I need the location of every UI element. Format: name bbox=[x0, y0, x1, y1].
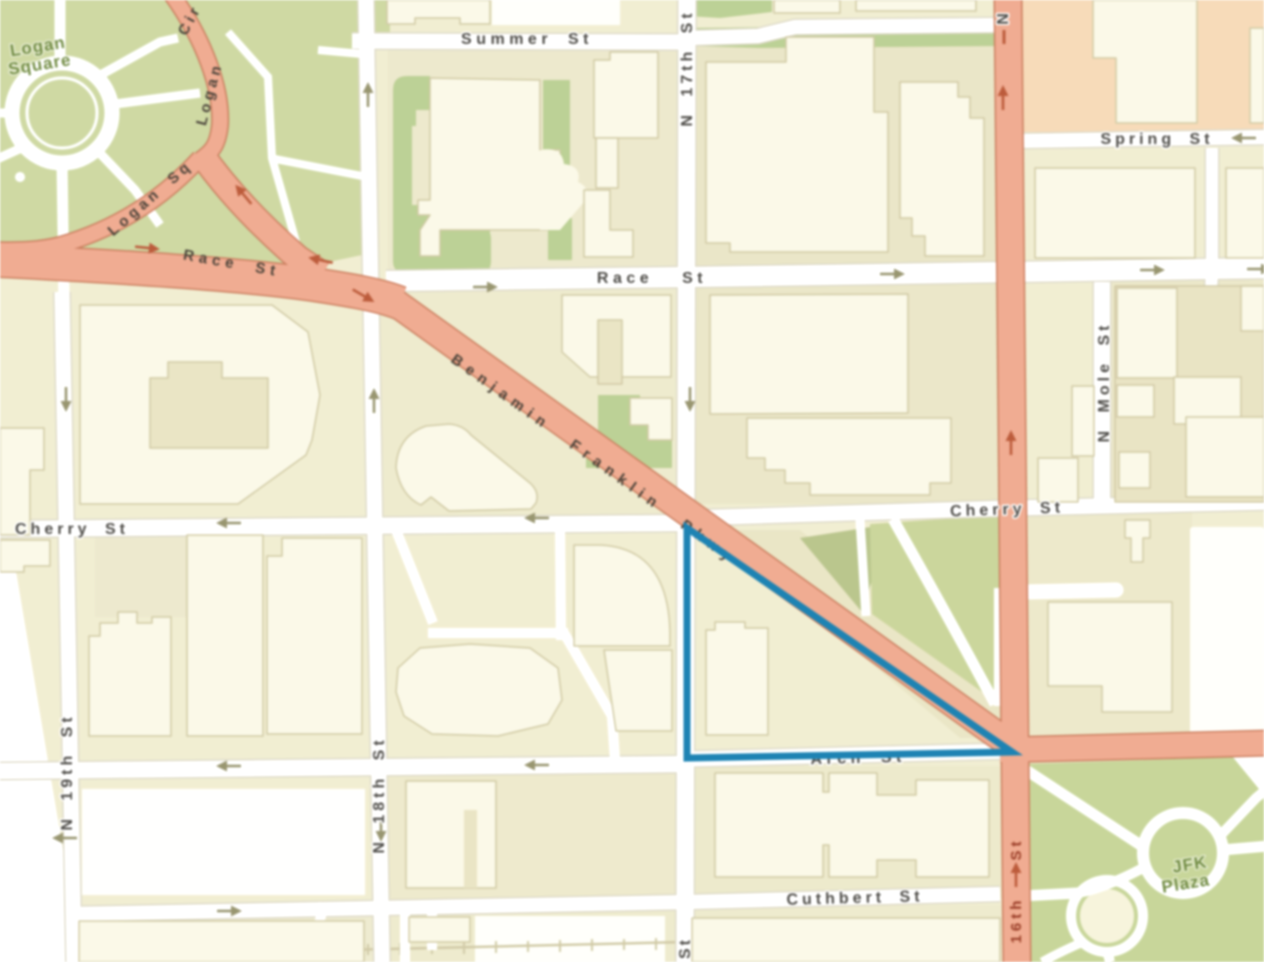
svg-text:N Mole St: N Mole St bbox=[1096, 322, 1113, 443]
svg-text:N 18th St: N 18th St bbox=[371, 736, 388, 853]
svg-text:St: St bbox=[1008, 838, 1025, 861]
svg-text:16th: 16th bbox=[1008, 897, 1025, 944]
svg-text:Cuthbert St: Cuthbert St bbox=[786, 888, 924, 909]
svg-text:Spring St: Spring St bbox=[1100, 131, 1213, 148]
svg-text:Race St: Race St bbox=[597, 270, 707, 287]
svg-text:Cherry St: Cherry St bbox=[15, 521, 129, 538]
svg-text:Summer St: Summer St bbox=[461, 31, 593, 48]
svg-text:N: N bbox=[995, 9, 1012, 25]
svg-text:St: St bbox=[677, 937, 694, 959]
svg-text:N 17th St: N 17th St bbox=[679, 9, 696, 126]
svg-text:N 19th St: N 19th St bbox=[59, 713, 76, 830]
